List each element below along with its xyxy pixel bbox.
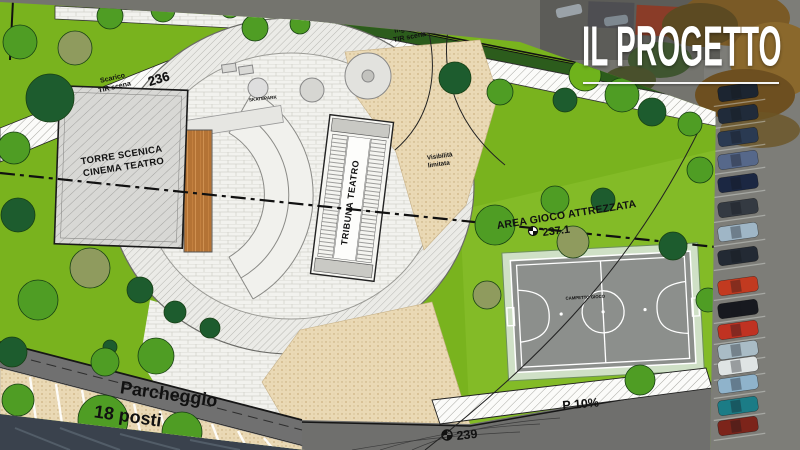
tree bbox=[18, 280, 58, 320]
page-title-text: IL PROGETTO bbox=[582, 16, 782, 78]
benchmark-237-icon bbox=[529, 227, 538, 236]
tree bbox=[91, 348, 119, 376]
tree bbox=[553, 88, 577, 112]
tree bbox=[127, 277, 153, 303]
tree bbox=[200, 318, 220, 338]
masterplan-slide: CAMPETTO GIOCO bbox=[0, 0, 800, 450]
tree bbox=[0, 132, 30, 164]
tree bbox=[439, 62, 471, 94]
tree bbox=[70, 248, 110, 288]
tree bbox=[26, 74, 74, 122]
tree bbox=[58, 31, 92, 65]
tree bbox=[638, 98, 666, 126]
tree bbox=[687, 157, 713, 183]
tree bbox=[473, 281, 501, 309]
tree bbox=[2, 384, 34, 416]
elevation-239: 239 bbox=[456, 427, 478, 443]
tree bbox=[1, 198, 35, 232]
tree bbox=[659, 232, 687, 260]
tree bbox=[625, 365, 655, 395]
sports-field: CAMPETTO GIOCO bbox=[502, 243, 704, 381]
stage-deck bbox=[184, 130, 212, 252]
tree bbox=[3, 25, 37, 59]
tree bbox=[0, 337, 27, 367]
tree bbox=[487, 79, 513, 105]
tree bbox=[678, 112, 702, 136]
tree bbox=[138, 338, 174, 374]
tree bbox=[164, 301, 186, 323]
benchmark-239-icon bbox=[442, 430, 452, 440]
page-title: IL PROGETTO bbox=[582, 16, 782, 80]
title-underline bbox=[583, 82, 779, 84]
tree bbox=[242, 15, 268, 41]
